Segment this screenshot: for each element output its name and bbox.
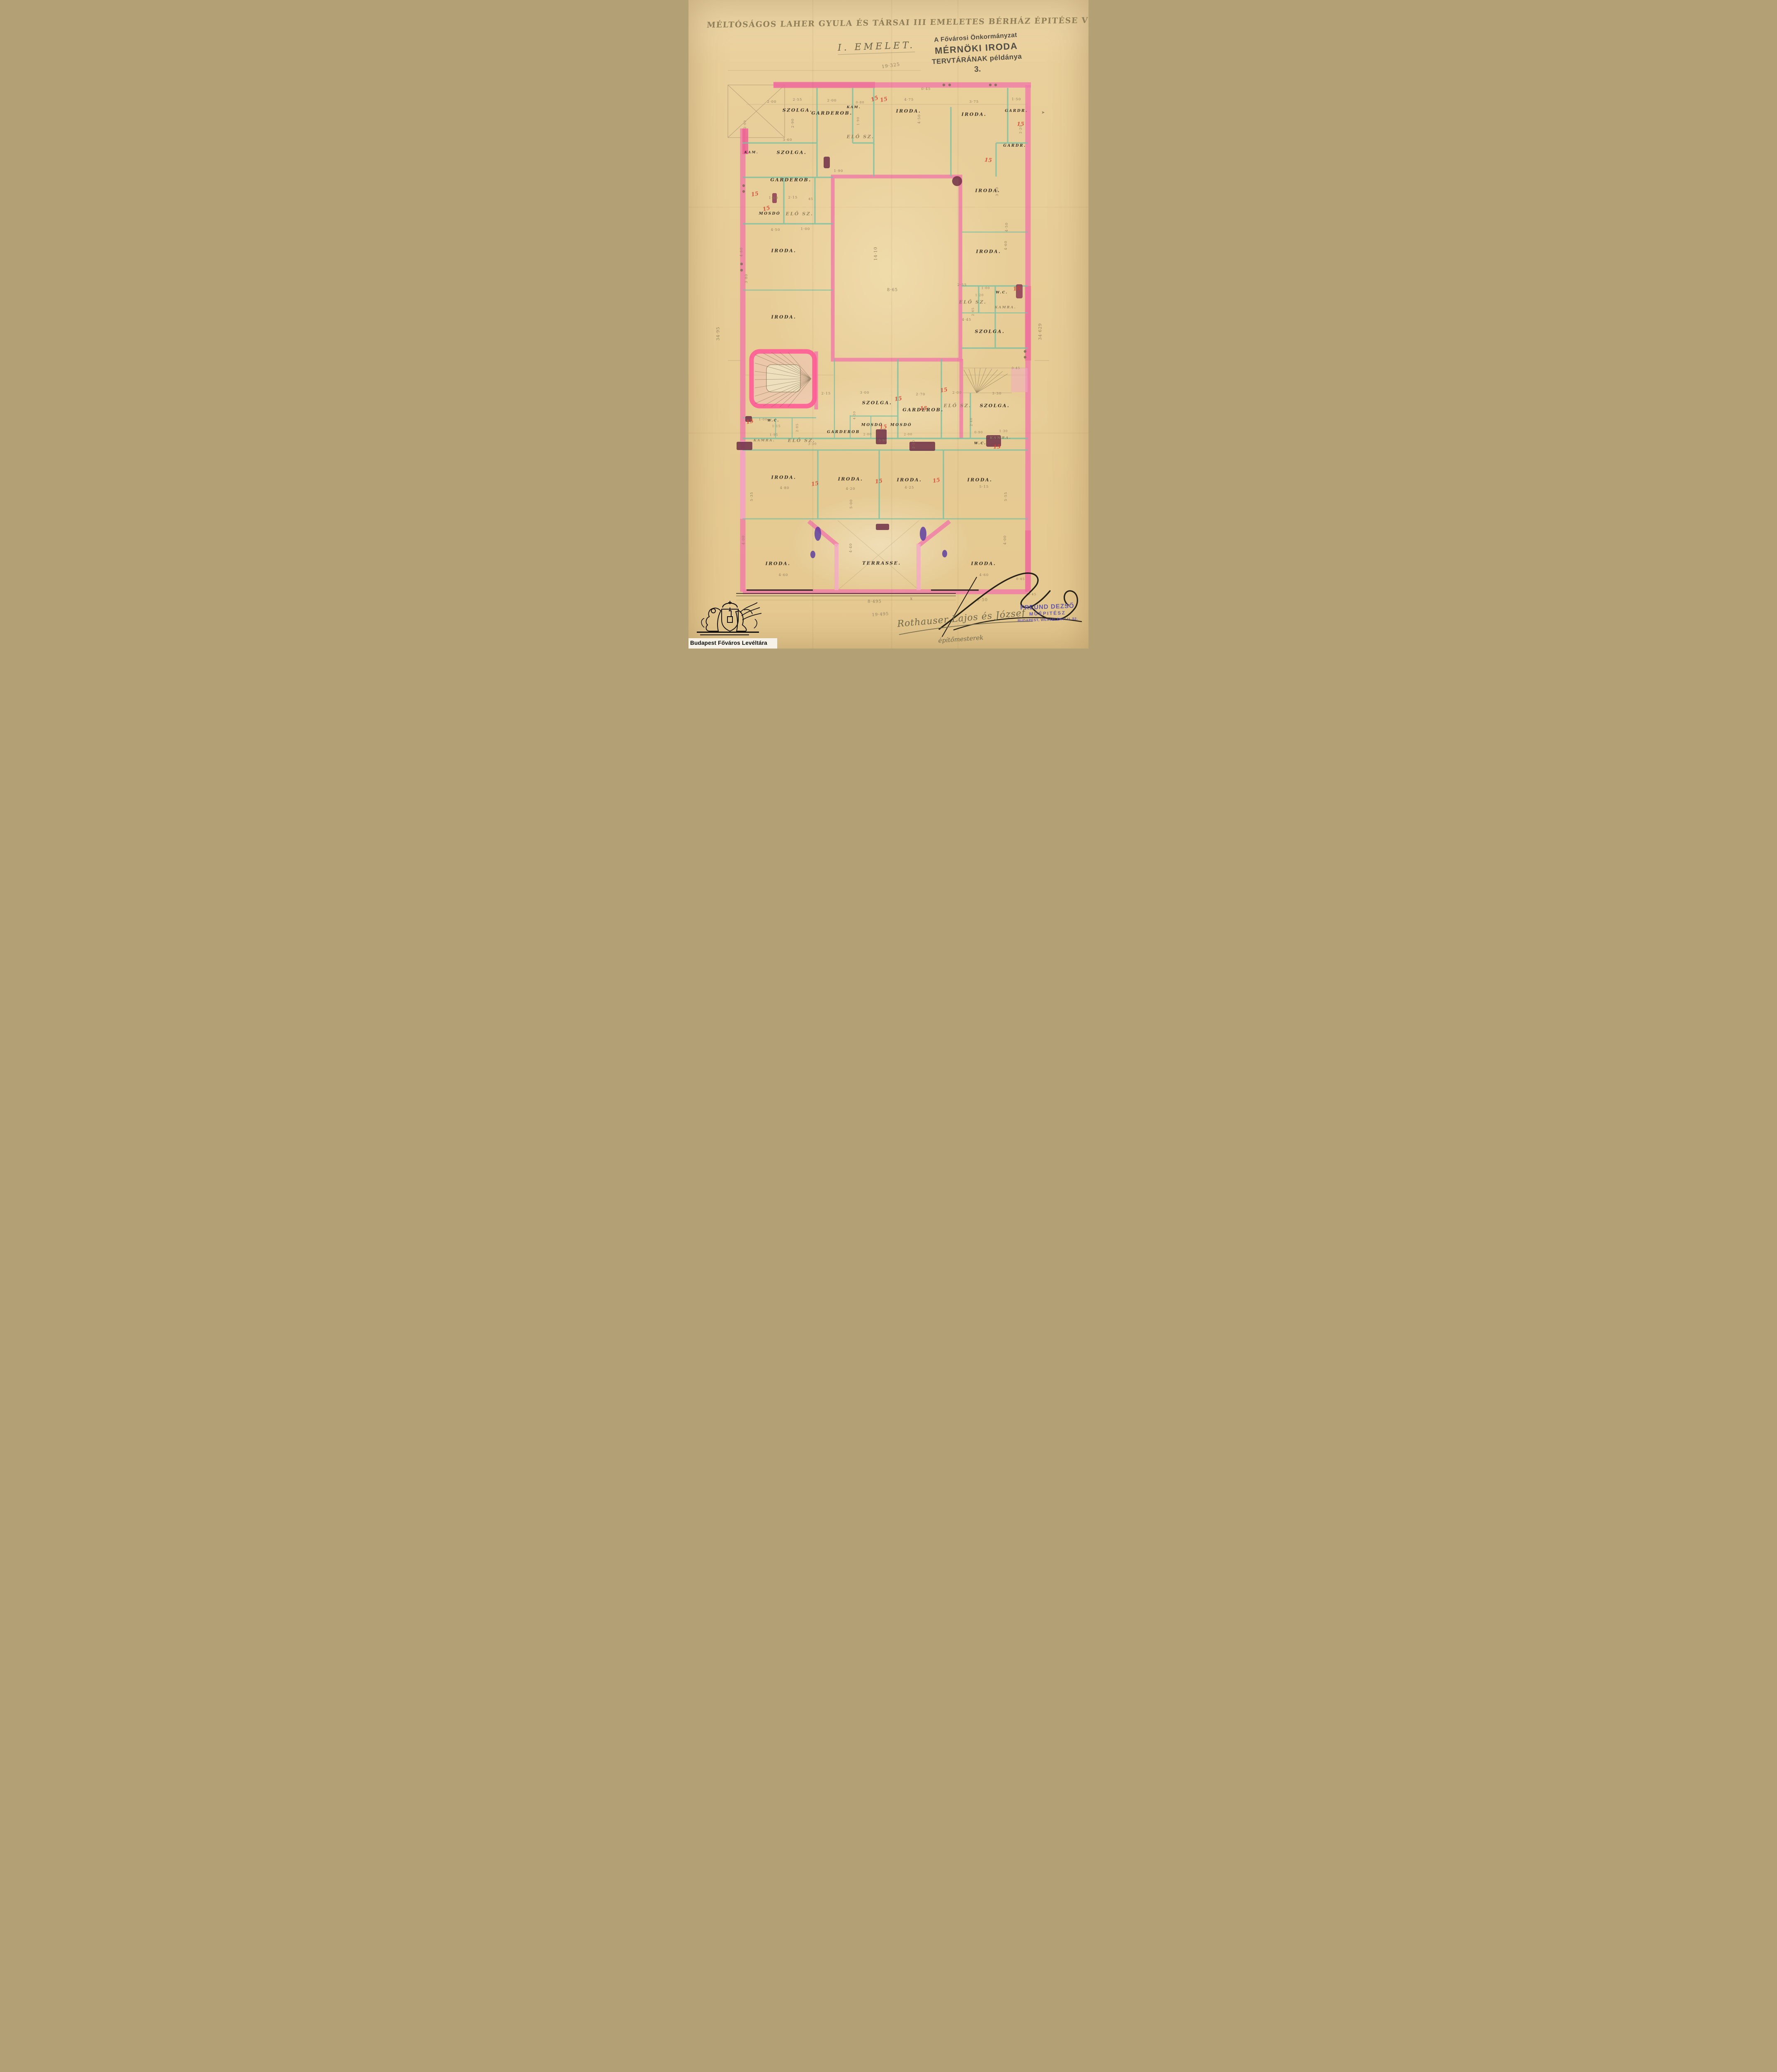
dimension-label: 1·15 <box>772 424 781 428</box>
dimension-label: 2·00 <box>767 100 777 104</box>
dimension-label: 0·45 <box>1012 366 1021 370</box>
room-label: IRODA. <box>971 561 996 566</box>
dimension-label: 2·70 <box>916 392 926 397</box>
dimension-label: 2·00 <box>953 391 962 395</box>
dimension-label: 4·00 <box>1003 535 1007 545</box>
room-label: KAMRA. <box>990 436 1011 440</box>
revision-mark: 15 <box>811 480 819 488</box>
room-label: SZOLGA. <box>980 403 1010 409</box>
dimension-label: 4·20 <box>846 487 856 491</box>
dimension-label: 1·90 <box>834 169 844 173</box>
dimension-label: 4·60 <box>779 573 788 577</box>
dimension-label: 5·00 <box>849 499 853 509</box>
room-label: SZOLGA. <box>777 150 807 155</box>
room-label: MOSDÓ <box>890 423 912 427</box>
room-label: KAM. <box>744 150 759 154</box>
revision-mark: 15 <box>932 477 941 484</box>
architect-stamp: FREUND DEZSŐ MŰÉPITÉSZ BUDAPEST, WESSELÉ… <box>1006 602 1088 623</box>
dimension-label: 2·55 <box>793 98 802 102</box>
dimension-label: 2·10 <box>912 440 916 449</box>
dimension-label: 4·60 <box>739 247 744 257</box>
dimension-label: 2·00 <box>904 433 913 436</box>
dimension-label: 4·75 <box>904 98 914 102</box>
dimension-label: 3·80 <box>744 274 749 283</box>
dimension-label: 0·45 <box>921 87 931 91</box>
dimension-label: 2·55 <box>958 283 967 287</box>
room-label: TERRASSE. <box>862 561 901 566</box>
dimension-label: 1·00 <box>759 418 768 421</box>
archive-crest-logo <box>692 598 775 639</box>
revision-mark: 15 <box>879 424 887 431</box>
dimension-label: 14·10 <box>874 247 878 261</box>
dimension-label: 2·15 <box>788 196 798 200</box>
dimension-label: 2·00 <box>743 120 747 129</box>
dimension-label: 2·45 <box>971 307 975 316</box>
room-label: GARDR. <box>1003 144 1026 148</box>
room-label: SZOLGA. <box>783 108 813 113</box>
room-label: IRODA. <box>838 477 863 482</box>
revision-mark: 15 <box>751 191 759 198</box>
room-label: ELŐ SZ. <box>847 134 875 140</box>
room-label: MOSDÓ <box>759 212 781 216</box>
dimension-label: 5·55 <box>1004 492 1008 501</box>
dimension-label: 1·60 <box>769 196 778 200</box>
dimension-label: 3·75 <box>970 100 979 104</box>
room-label: IRODA. <box>962 112 987 117</box>
dimension-label: 4·45 <box>962 318 972 322</box>
dimension-label: 0·90 <box>879 439 887 443</box>
main-staircase <box>752 351 815 407</box>
dimension-label: 1·30 <box>999 429 1008 433</box>
room-label: IRODA. <box>771 315 797 320</box>
revision-mark: 15 <box>993 444 1001 450</box>
room-label: IRODA. <box>766 561 791 566</box>
room-label: KAMRA. <box>754 438 775 442</box>
dimension-label: 4·50 <box>771 228 781 232</box>
dimension-label: 1·95 <box>770 433 778 437</box>
floor-plan-drawing <box>688 0 1089 649</box>
room-label: SZOLGA. <box>975 329 1005 334</box>
dimension-label: 3·30 <box>808 442 817 446</box>
dimension-label: 3·80 <box>995 187 999 196</box>
dimension-label: ➤ <box>1041 111 1045 115</box>
dimension-label: 2·00 <box>863 433 872 436</box>
archive-caption: Budapest Főváros Levéltára <box>690 640 777 646</box>
dimension-label: 4·80 <box>780 486 790 490</box>
pencil-guide-lines <box>728 70 1049 600</box>
dimension-label: 34·95 <box>716 327 721 341</box>
dimension-label: 4·50 <box>917 114 921 124</box>
room-label: IRODA. <box>897 477 922 483</box>
room-label: SZOLGA. <box>862 400 892 406</box>
dimension-label: 4·00 <box>742 535 746 545</box>
dimension-label: 34·629 <box>1038 323 1043 340</box>
dimension-label: x <box>910 597 913 601</box>
dimension-label: 4·60 <box>1004 241 1008 250</box>
dimension-label: 2·00 <box>827 99 837 103</box>
room-label: GARDEROB <box>827 430 860 434</box>
dimension-label: 5·15 <box>979 485 989 489</box>
room-label: IRODA. <box>896 109 921 114</box>
room-label: W.C. <box>996 290 1008 294</box>
dimension-label: 3·00 <box>860 391 870 395</box>
room-label: GARDEROB. <box>770 177 811 183</box>
dimension-label: 4·50 <box>1005 223 1009 232</box>
room-label: IRODA. <box>976 249 1001 254</box>
dimension-label: 8·495 <box>868 600 882 604</box>
room-label: ELŐ SZ. <box>944 403 972 409</box>
room-label: GARDEROB. <box>811 111 852 116</box>
dimension-label: 0·90 <box>975 431 983 434</box>
room-label: GARDR. <box>1005 109 1028 113</box>
revision-mark: 15 <box>920 406 927 412</box>
dimension-label: 1·00 <box>982 286 990 290</box>
dimension-label: 45 <box>808 197 813 201</box>
registry-stamp: A Fővárosi Önkormányzat MÉRNÖKI IRODA TE… <box>916 30 1037 77</box>
dimension-label: 4·30 <box>853 411 856 420</box>
room-label: ELŐ SZ. <box>786 211 814 217</box>
dimension-label: 4·40 <box>849 543 853 553</box>
revision-mark: 15 <box>1017 121 1024 128</box>
room-label: IRODA. <box>771 248 797 254</box>
dimension-label: 2·40 <box>970 418 973 426</box>
room-label: IRODA. <box>967 477 993 483</box>
room-label: IRODA. <box>771 475 797 480</box>
secondary-staircase <box>964 368 1028 393</box>
room-label: KAM. <box>847 105 861 109</box>
revision-mark: 15 <box>894 395 902 402</box>
dimension-label: 4·25 <box>905 486 914 490</box>
dimension-label: 5·35 <box>750 492 754 501</box>
dimension-label: 3·60 <box>783 138 793 142</box>
dimension-label: 1·20 <box>975 293 984 297</box>
room-label: W.C. <box>974 441 987 445</box>
dimension-label: 0·80 <box>856 101 865 104</box>
revision-mark: 15 <box>875 478 883 485</box>
room-label: ELŐ SZ. <box>959 300 987 305</box>
dimension-label: 1·90 <box>856 117 860 126</box>
dimension-label: 1·50 <box>1012 97 1021 102</box>
dimension-label: 1·00 <box>801 227 810 231</box>
blueprint-sheet: MÉLTÓSÁGOS LAHER GYULA ÉS TÁRSAI III EME… <box>688 0 1089 649</box>
room-label: W.C. <box>767 418 780 422</box>
dimension-label: 8·65 <box>887 288 898 293</box>
revision-mark: 15 <box>940 387 948 394</box>
room-label: KAMRA. <box>995 305 1016 309</box>
revision-mark: 15 <box>1013 285 1021 292</box>
dimension-label: 3·30 <box>992 392 1002 396</box>
dimension-label: 2·90 <box>791 119 795 128</box>
revision-mark: 15 <box>984 157 992 164</box>
dimension-label: 2·15 <box>822 392 831 396</box>
dimension-label: 2·85 <box>795 424 799 432</box>
bay-column-patches <box>810 527 947 558</box>
